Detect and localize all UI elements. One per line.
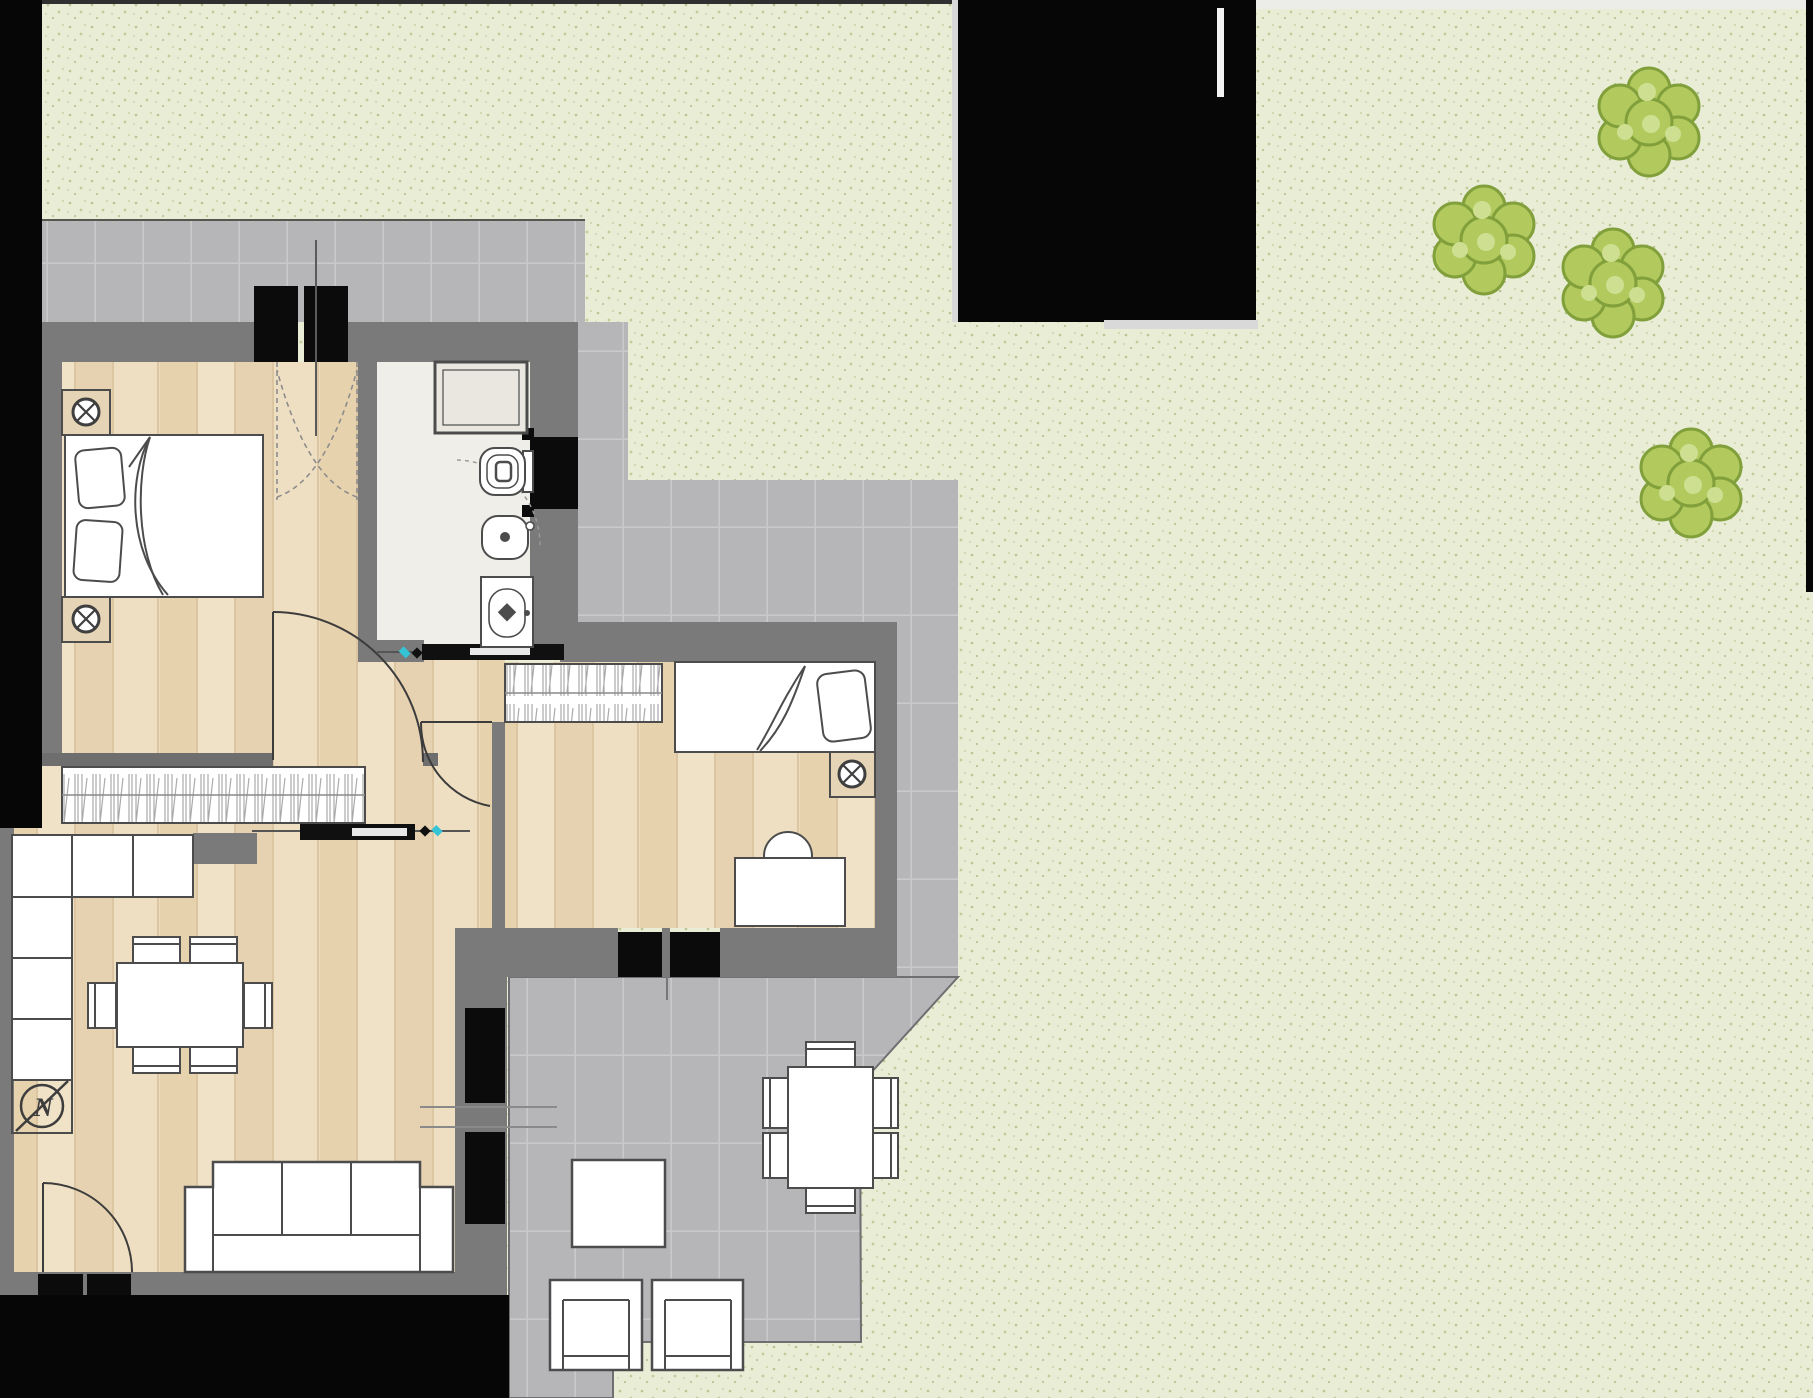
balcony-door-leaf-right (304, 286, 348, 362)
bedroom2-window-right (670, 932, 720, 977)
toilet (480, 448, 533, 495)
pillow (816, 669, 872, 742)
outdoor-chair (806, 1042, 855, 1067)
entrance-opening-left (38, 1274, 83, 1297)
living-window-lower (465, 1132, 505, 1224)
outdoor-chair (763, 1078, 788, 1128)
mask-bottom-left (0, 1295, 509, 1398)
mask-top-middle (958, 0, 1256, 322)
balcony-door-leaf-left (254, 286, 298, 362)
outdoor-chair (763, 1133, 788, 1178)
compass-north-label: N (33, 1093, 54, 1122)
bathroom-window (530, 437, 578, 509)
dining-chair (190, 937, 237, 963)
outdoor-table (788, 1067, 873, 1188)
mask-left (0, 0, 42, 828)
outdoor-chair (873, 1133, 898, 1178)
outdoor-side-table (572, 1160, 665, 1247)
wall-lamp-icon (839, 761, 865, 787)
shower-tray (435, 362, 527, 433)
desk (735, 858, 845, 926)
pillow (73, 519, 123, 582)
dining-chair (190, 1047, 237, 1073)
lounge-chair (652, 1280, 743, 1370)
outdoor-chair (806, 1188, 855, 1213)
pillow (75, 447, 126, 509)
dining-chair (244, 983, 272, 1028)
bedroom2-window-left (618, 932, 662, 977)
lounge-chair (550, 1280, 642, 1370)
living-window-upper (465, 1008, 505, 1103)
washbasin (481, 577, 533, 647)
outdoor-chair (873, 1078, 898, 1128)
sofa (185, 1162, 453, 1272)
dining-table (117, 963, 243, 1047)
dining-chair (133, 1047, 180, 1073)
top-edge-line (42, 0, 958, 4)
entrance-opening-right (87, 1274, 131, 1297)
dining-chair (88, 983, 116, 1028)
floor-plan-screenshot: N (0, 0, 1813, 1398)
top-right-light-strip (1256, 0, 1806, 9)
wall-lamp-icon (73, 606, 99, 632)
wall-lamp-icon (73, 399, 99, 425)
dining-chair (133, 937, 180, 963)
mask-right-edge (1806, 0, 1813, 592)
